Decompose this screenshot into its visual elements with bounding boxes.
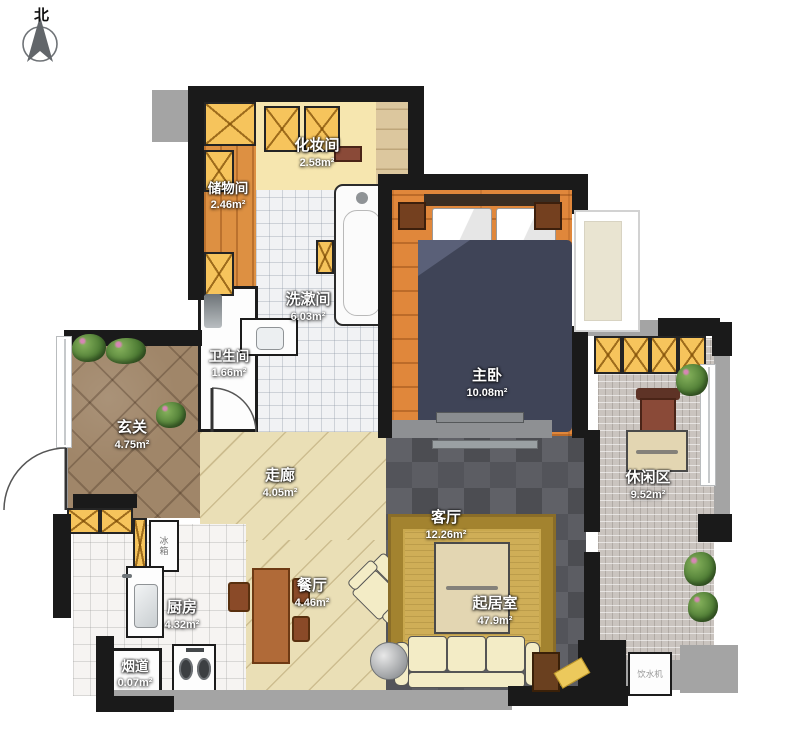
floor-plan: 北 xyxy=(0,0,800,732)
bathtub-basin xyxy=(343,210,381,316)
wall-bedroom-right-lower xyxy=(572,326,588,438)
entry-floor xyxy=(68,346,202,518)
shoe-cabinet-3 xyxy=(133,518,147,572)
bedroom-bay-window xyxy=(574,210,640,332)
stove xyxy=(172,644,216,694)
concrete-notch-top xyxy=(152,90,192,142)
wall-bottom-left xyxy=(96,696,174,712)
leisure-cabinet-1 xyxy=(594,336,622,374)
fridge: 冰箱 xyxy=(149,520,179,572)
storage-cabinet-top xyxy=(204,102,256,146)
water-dispenser-label: 饮水机 xyxy=(637,668,663,680)
stove-burner-2 xyxy=(197,658,211,680)
sofa xyxy=(394,634,540,692)
washroom-sink-unit xyxy=(240,318,298,356)
stove-panel xyxy=(186,648,204,652)
bed-duvet xyxy=(418,240,572,432)
wall-living-leisure-lower xyxy=(584,552,600,644)
kitchen-sink-unit xyxy=(126,566,164,638)
compass: 北 xyxy=(12,4,68,70)
washroom-sink-basin xyxy=(256,327,284,350)
leisure-plant-bottom-2 xyxy=(688,592,718,622)
concrete-bottom-right xyxy=(680,645,738,693)
water-dispenser: 饮水机 xyxy=(628,652,672,696)
wall-living-leisure-upper xyxy=(584,430,600,532)
tv-bedroom xyxy=(436,412,524,423)
shoe-cabinet-1 xyxy=(67,508,100,534)
wall-bedroom-top xyxy=(388,174,588,190)
storage-cabinet-bottom xyxy=(204,252,234,296)
storage-cabinet-mid xyxy=(204,150,234,192)
sofa-cushion-1 xyxy=(408,636,447,672)
sofa-cushion-3 xyxy=(486,636,525,672)
entry-plant-2 xyxy=(106,338,146,364)
makeup-stool xyxy=(334,146,362,162)
wall-kitchen-left xyxy=(53,514,71,618)
coffee-table-handle xyxy=(446,586,498,590)
kitchen-faucet-icon xyxy=(122,574,132,578)
nightstand-right xyxy=(534,202,562,230)
bay-window-pane xyxy=(584,221,622,321)
washroom-cabinet xyxy=(316,240,334,274)
dining-chair-right-1 xyxy=(292,578,310,604)
wall-bedroom-left xyxy=(378,174,392,438)
entry-plant-1 xyxy=(72,334,106,362)
entry-plant-3 xyxy=(156,402,186,428)
shower-icon xyxy=(204,294,222,328)
wall-leisure-corner-top xyxy=(712,322,732,356)
leisure-cabinet-3 xyxy=(650,336,678,374)
desk-chair-seat xyxy=(640,398,676,434)
leisure-desk-handle xyxy=(636,450,678,454)
round-side-table xyxy=(370,642,408,680)
compass-north-label: 北 xyxy=(34,4,49,25)
concrete-right-band xyxy=(714,340,730,520)
wall-left-upper xyxy=(188,86,204,300)
kitchen-sink-basin xyxy=(134,584,158,628)
dining-chair-right-2 xyxy=(292,616,310,642)
wall-entry-bottom xyxy=(73,494,137,508)
sofa-cushion-2 xyxy=(447,636,486,672)
nightstand-left xyxy=(398,202,426,230)
dining-chair-left xyxy=(228,582,250,612)
fridge-label: 冰箱 xyxy=(158,536,171,556)
leisure-plant-top xyxy=(676,364,708,396)
leisure-desk xyxy=(626,430,688,472)
wall-top xyxy=(188,86,424,102)
makeup-wardrobe-1 xyxy=(264,106,300,152)
bathtub-faucet-icon xyxy=(356,192,368,204)
shoe-cabinet-2 xyxy=(100,508,133,534)
tv-living xyxy=(432,440,538,449)
wall-leisure-top xyxy=(658,318,720,336)
wall-leisure-corner-bottom xyxy=(698,514,732,542)
wall-bottom-sofa xyxy=(508,686,628,706)
bed-pillow-left xyxy=(432,208,492,244)
entry-window xyxy=(56,336,72,448)
leisure-plant-bottom-1 xyxy=(684,552,716,586)
leisure-cabinet-2 xyxy=(622,336,650,374)
wall-bedroom-right-upper xyxy=(572,174,588,214)
stove-burner-1 xyxy=(179,658,193,680)
coffee-table xyxy=(434,542,510,634)
dining-table xyxy=(252,568,290,664)
